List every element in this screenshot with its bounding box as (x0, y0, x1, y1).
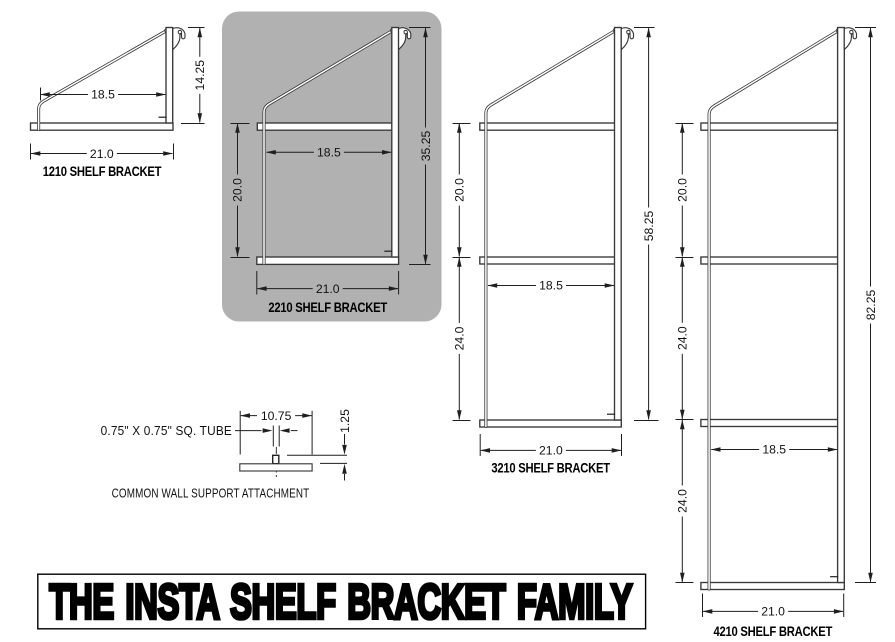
svg-text:18.5: 18.5 (317, 146, 341, 160)
svg-text:THE INSTA SHELF BRACKET FAMILY: THE INSTA SHELF BRACKET FAMILY (49, 574, 632, 629)
svg-text:24.0: 24.0 (676, 489, 690, 513)
svg-text:58.25: 58.25 (642, 211, 656, 242)
svg-text:18.5: 18.5 (91, 87, 115, 101)
svg-text:24.0: 24.0 (676, 326, 690, 350)
svg-text:4210 SHELF BRACKET: 4210 SHELF BRACKET (714, 624, 833, 639)
svg-text:COMMON WALL SUPPORT ATTACHMENT: COMMON WALL SUPPORT ATTACHMENT (112, 487, 310, 501)
svg-text:21.0: 21.0 (316, 282, 340, 296)
svg-text:1.25: 1.25 (338, 409, 352, 433)
svg-text:18.5: 18.5 (539, 278, 563, 292)
svg-text:20.0: 20.0 (230, 178, 244, 202)
svg-text:20.0: 20.0 (676, 178, 690, 202)
svg-text:21.0: 21.0 (90, 147, 114, 161)
svg-text:3210 SHELF BRACKET: 3210 SHELF BRACKET (491, 460, 610, 475)
svg-text:18.5: 18.5 (762, 442, 786, 456)
svg-text:82.25: 82.25 (864, 290, 878, 321)
svg-text:21.0: 21.0 (761, 605, 785, 619)
svg-text:21.0: 21.0 (539, 444, 563, 458)
svg-text:0.75" X 0.75" SQ. TUBE: 0.75" X 0.75" SQ. TUBE (101, 423, 232, 437)
svg-text:24.0: 24.0 (453, 326, 467, 350)
svg-text:35.25: 35.25 (419, 131, 433, 162)
svg-text:20.0: 20.0 (453, 178, 467, 202)
svg-text:2210 SHELF BRACKET: 2210 SHELF BRACKET (268, 300, 387, 315)
svg-text:14.25: 14.25 (193, 60, 207, 91)
svg-text:1210 SHELF BRACKET: 1210 SHELF BRACKET (43, 164, 162, 179)
svg-text:10.75: 10.75 (261, 409, 292, 423)
